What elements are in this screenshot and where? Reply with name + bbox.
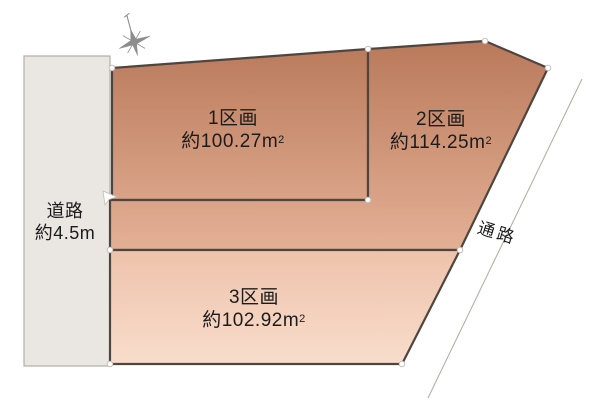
road-label: 道路 約4.5m	[35, 201, 96, 245]
plot-1-name: 1区画	[181, 107, 285, 130]
plot-2-area: 約114.25m2	[390, 131, 492, 154]
road-name: 道路	[35, 201, 96, 223]
plot-3-label: 3区画 約102.92m2	[202, 286, 306, 332]
compass-rose-icon	[111, 10, 154, 60]
plot-1-label: 1区画 約100.27m2	[181, 107, 285, 153]
plot-2-label: 2区画 約114.25m2	[390, 108, 492, 154]
plot-3-area: 約102.92m2	[202, 309, 306, 332]
plot-3-name: 3区画	[202, 286, 306, 309]
plot-2-name: 2区画	[390, 108, 492, 131]
road-width: 約4.5m	[35, 223, 96, 245]
land-plot-diagram: 1区画 約100.27m2 2区画 約114.25m2 3区画 約102.92m…	[0, 0, 600, 418]
plot-1-area: 約100.27m2	[181, 130, 285, 153]
